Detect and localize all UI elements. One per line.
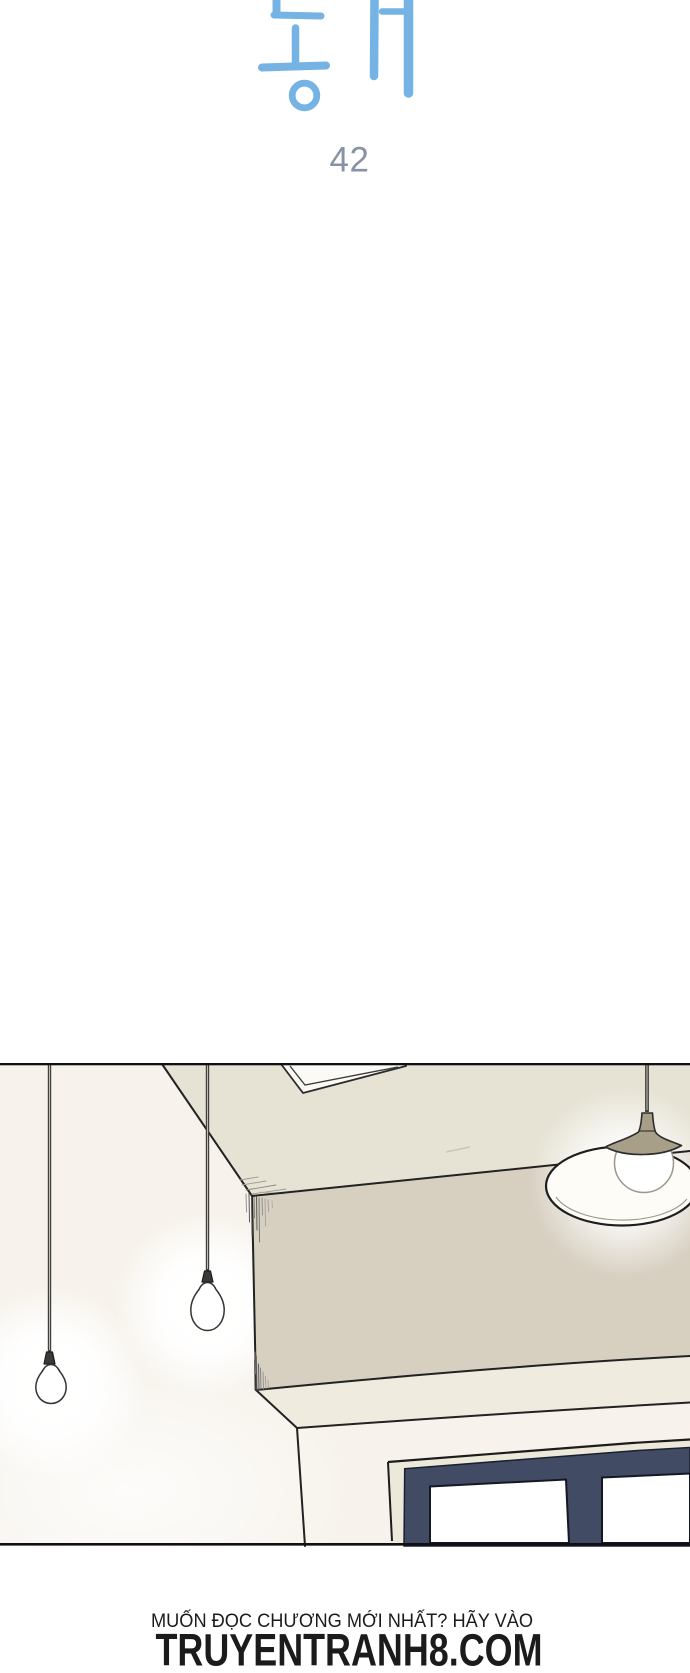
svg-text:TRUYENTRANH8.COM: TRUYENTRANH8.COM (156, 1625, 543, 1673)
svg-text:42: 42 (330, 141, 370, 180)
